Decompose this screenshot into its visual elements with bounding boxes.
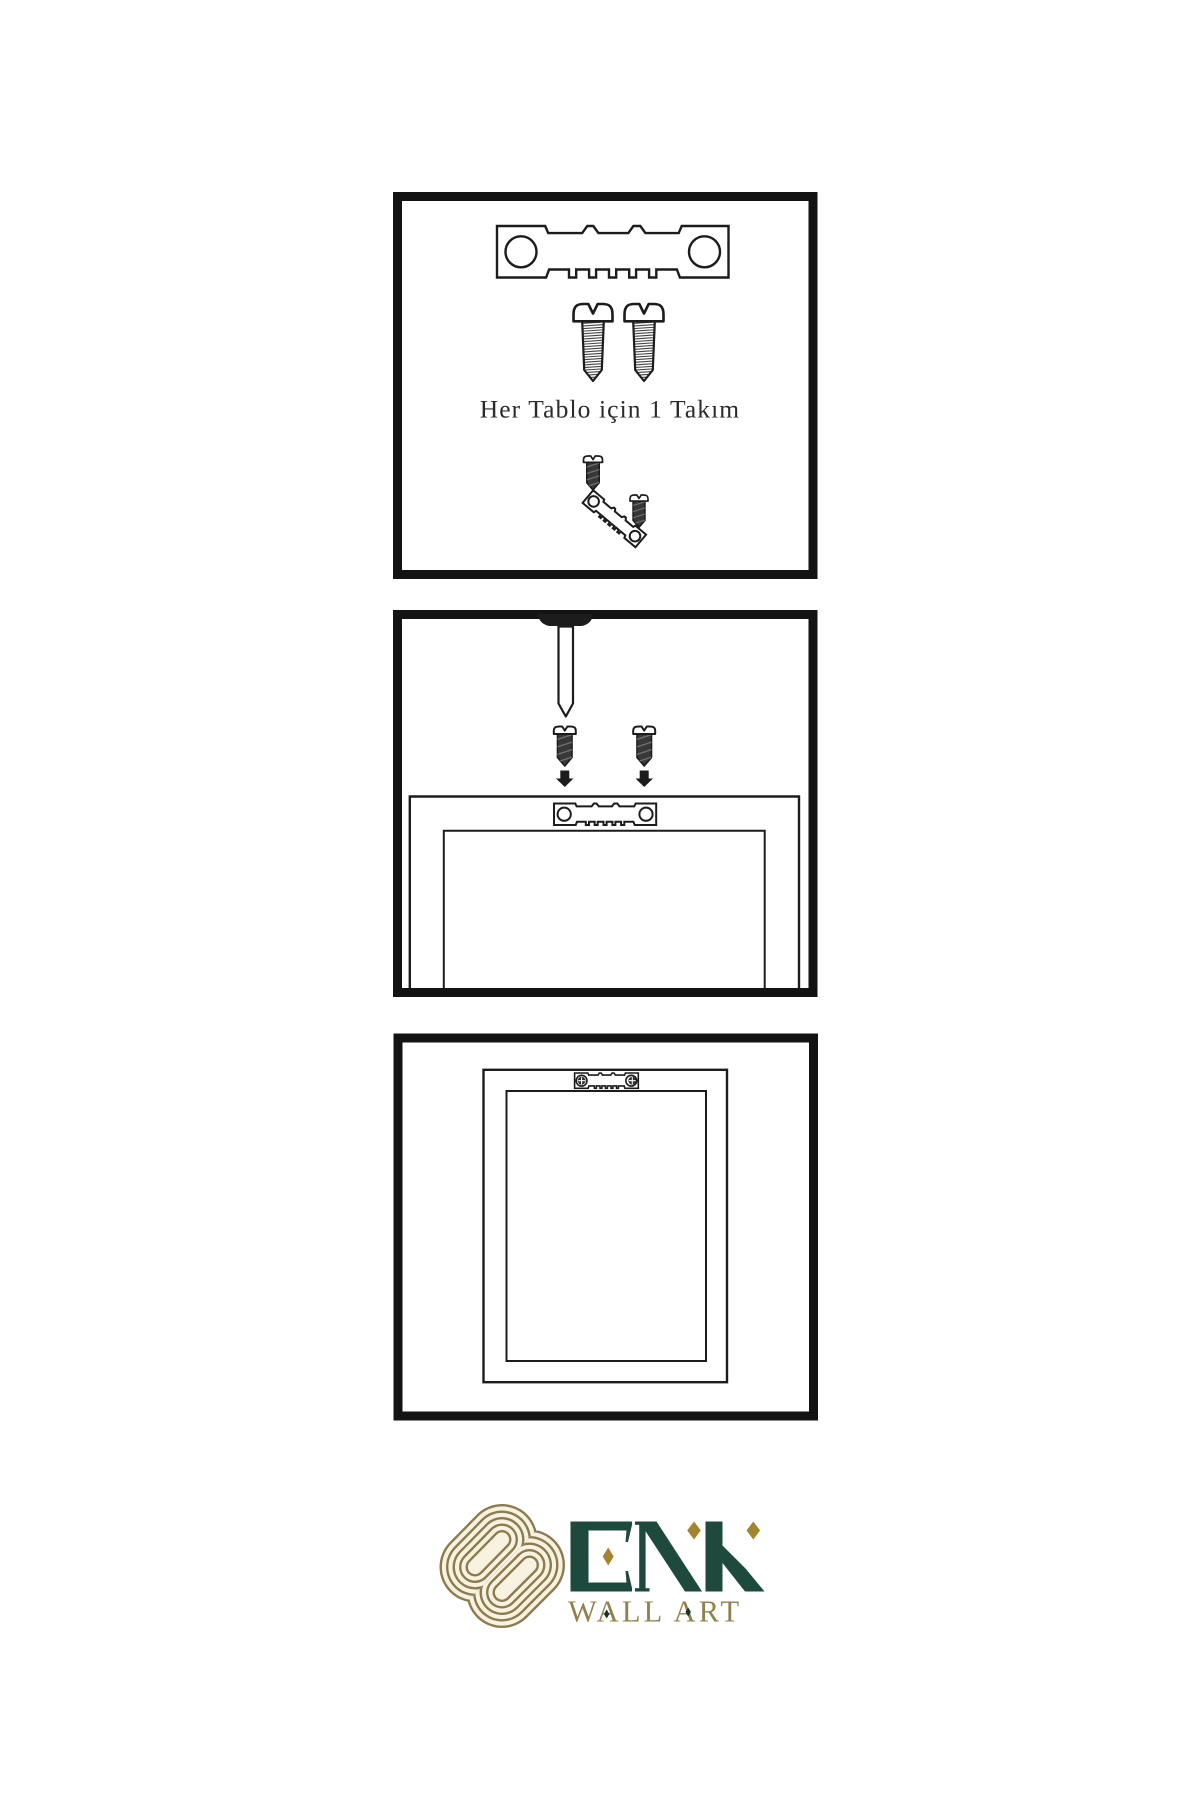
svg-text:WALL ART: WALL ART: [568, 1594, 742, 1628]
svg-text:Her Tablo için 1 Takım: Her Tablo için 1 Takım: [480, 395, 740, 424]
